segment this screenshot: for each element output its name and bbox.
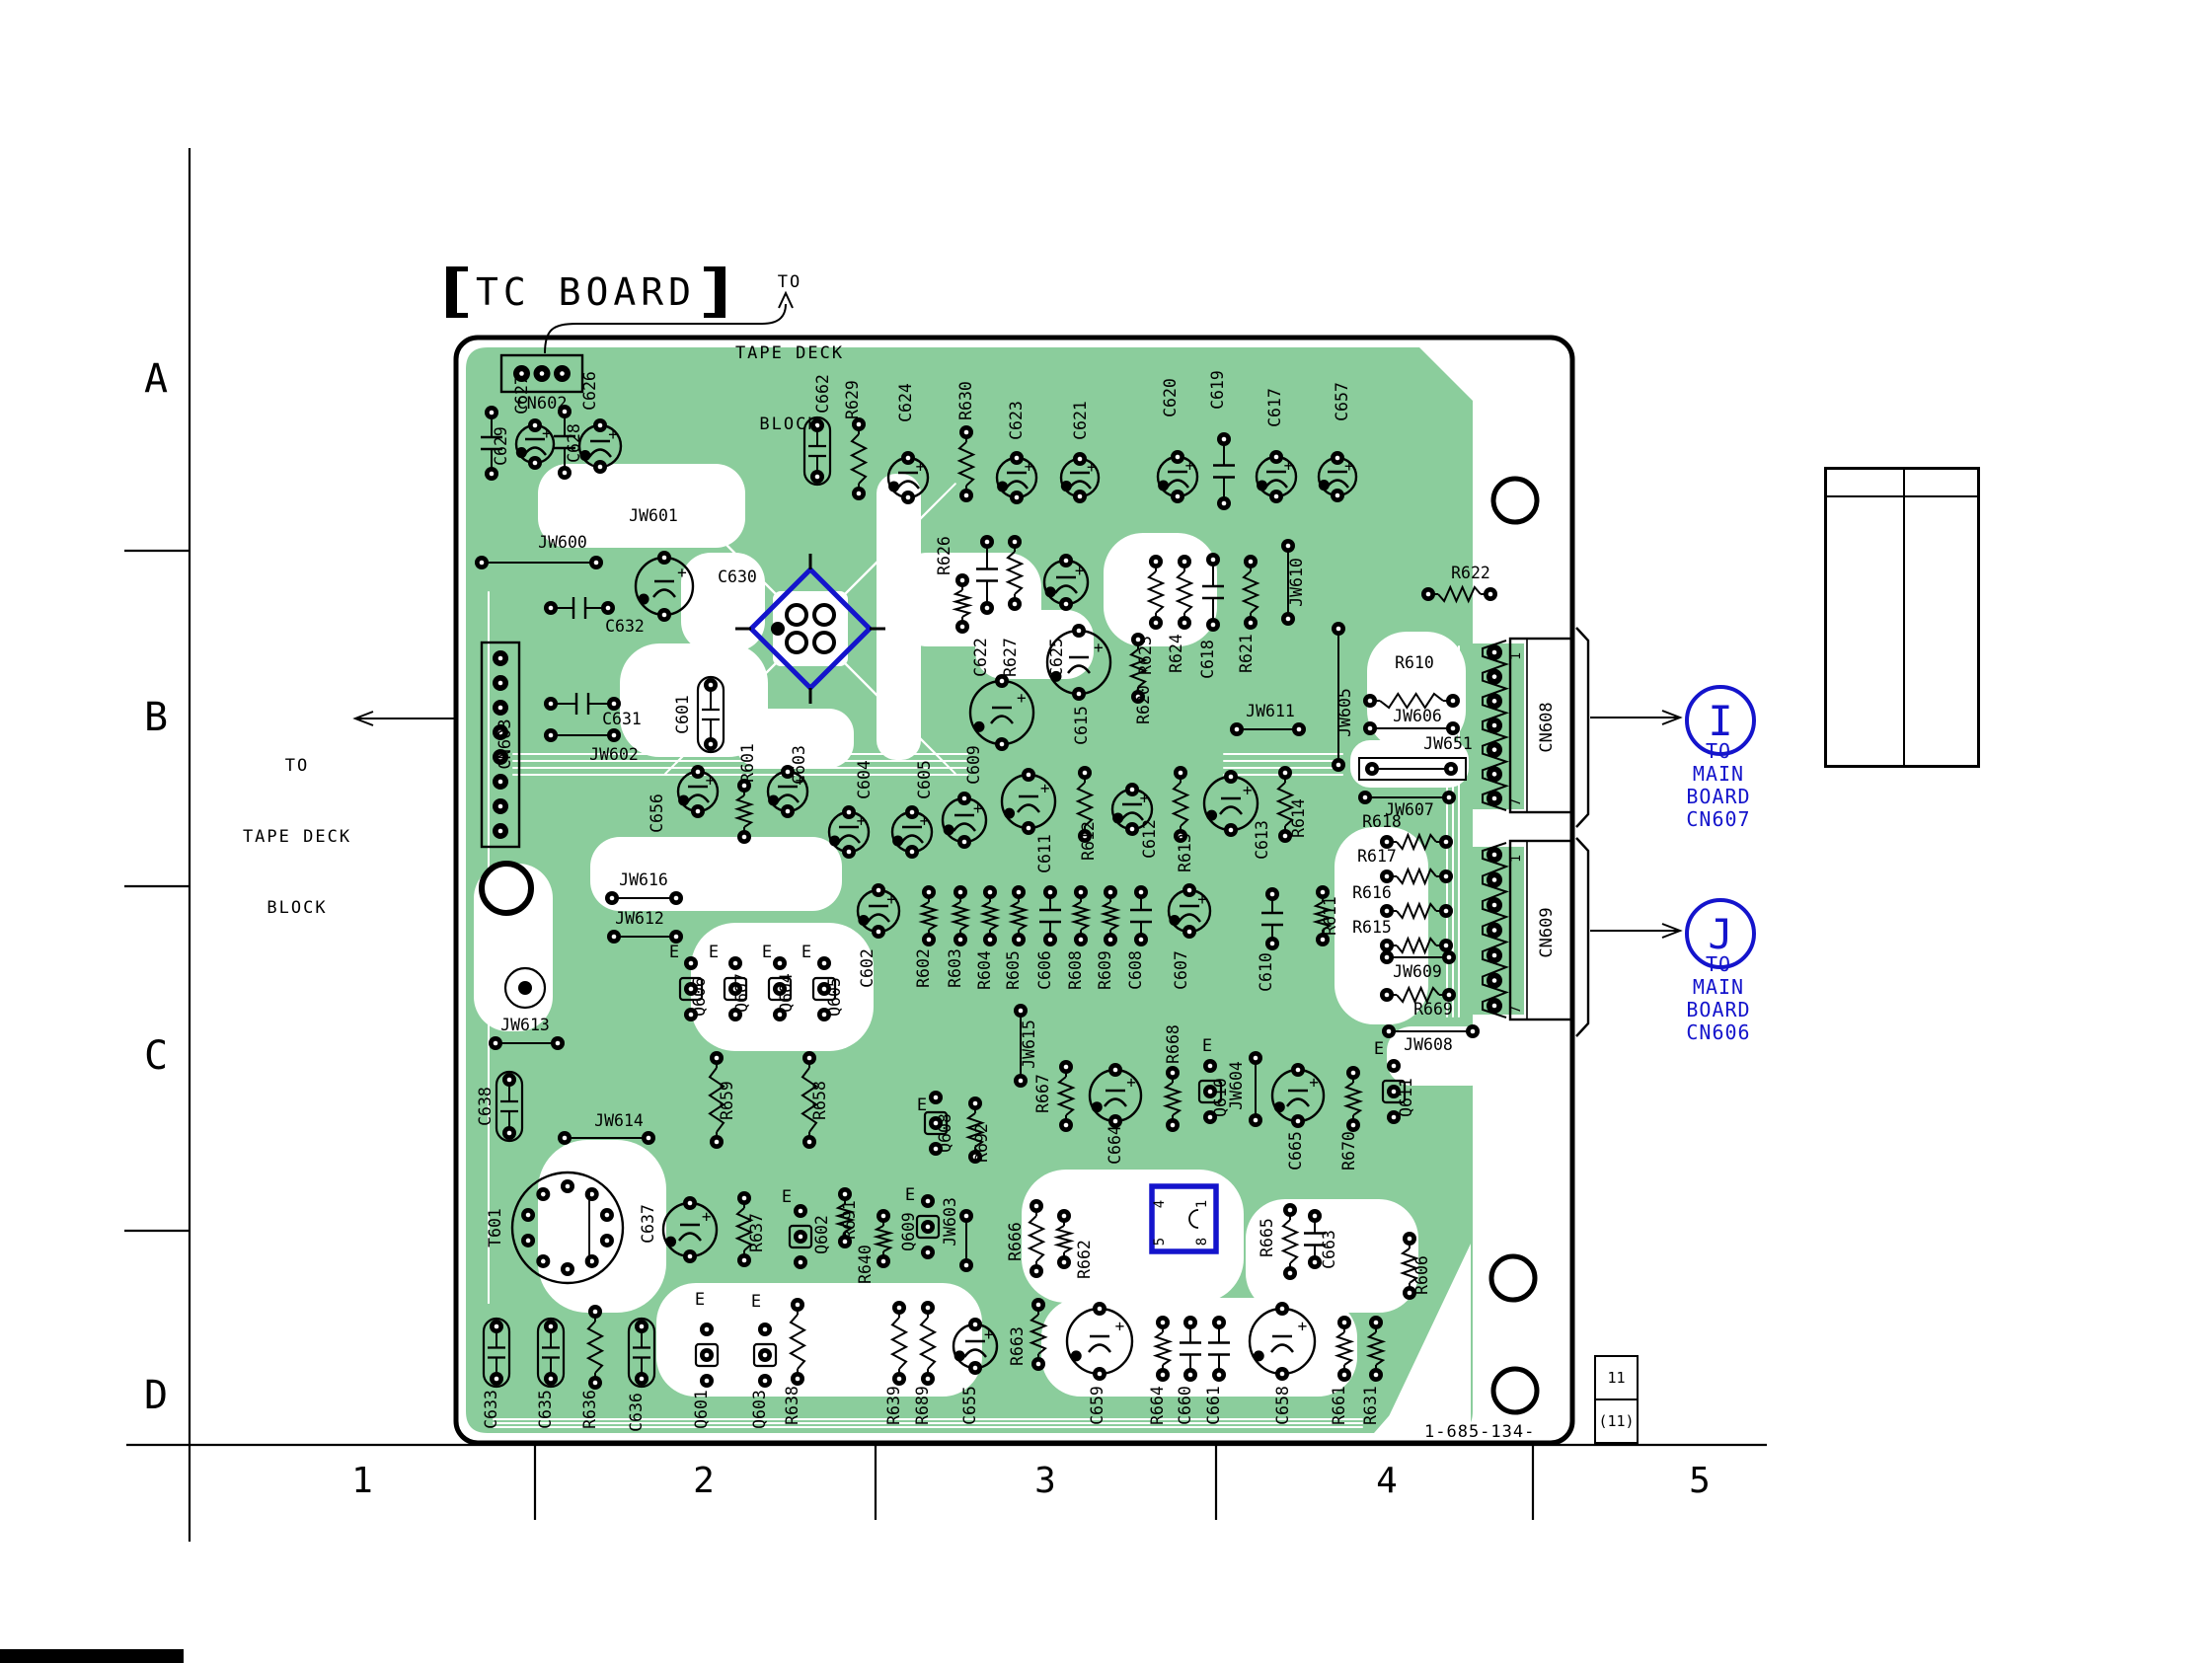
grid-row-label-B: B xyxy=(126,695,186,740)
svg-text:+: + xyxy=(542,423,552,442)
svg-text:R601: R601 xyxy=(738,743,757,783)
svg-text:R618: R618 xyxy=(1362,812,1402,831)
svg-text:T601: T601 xyxy=(486,1208,504,1247)
svg-text:Q604: Q604 xyxy=(777,973,796,1013)
svg-text:Q601: Q601 xyxy=(692,1390,711,1429)
svg-text:R631: R631 xyxy=(1361,1386,1380,1425)
svg-text:+: + xyxy=(1115,1317,1125,1335)
svg-text:R689: R689 xyxy=(913,1386,932,1425)
sheet-number-box: 11 (11) xyxy=(1594,1355,1639,1444)
title-bracket-close-icon xyxy=(704,266,725,318)
svg-text:C620: C620 xyxy=(1161,378,1180,417)
svg-text:R603: R603 xyxy=(946,948,964,988)
svg-text:+: + xyxy=(1025,457,1034,476)
svg-text:E: E xyxy=(695,1290,705,1310)
dest-line: TO xyxy=(1649,740,1788,763)
svg-text:CN608: CN608 xyxy=(1537,702,1557,752)
title-bracket-open-icon xyxy=(446,266,468,318)
svg-text:R627: R627 xyxy=(1001,638,1020,677)
svg-text:JW610: JW610 xyxy=(1287,558,1306,607)
svg-text:R692: R692 xyxy=(972,1123,991,1163)
note-line: TAPE DECK xyxy=(724,341,856,365)
svg-text:E: E xyxy=(1202,1036,1212,1056)
svg-text:R668: R668 xyxy=(1164,1024,1182,1064)
svg-text:R630: R630 xyxy=(956,381,975,420)
svg-text:+: + xyxy=(706,771,716,790)
svg-text:+: + xyxy=(1087,457,1097,476)
svg-text:R663: R663 xyxy=(1008,1326,1027,1366)
dest-text-cn607: TO MAIN BOARD CN607 xyxy=(1649,740,1788,831)
svg-text:R664: R664 xyxy=(1148,1386,1167,1425)
svg-text:R626: R626 xyxy=(935,536,953,575)
svg-text:C618: C618 xyxy=(1198,640,1217,679)
grid-col-label-5: 5 xyxy=(1670,1461,1729,1501)
svg-text:C631: C631 xyxy=(602,710,642,728)
svg-text:+: + xyxy=(1298,1317,1308,1335)
grid-row-label-D: D xyxy=(126,1373,186,1418)
page-title-text: TC BOARD xyxy=(476,270,696,314)
svg-text:JW612: JW612 xyxy=(615,909,664,928)
svg-text:Q608: Q608 xyxy=(936,1113,954,1153)
grid-col-label-1: 1 xyxy=(333,1461,392,1501)
svg-text:JW606: JW606 xyxy=(1393,707,1442,725)
dest-line: BOARD xyxy=(1649,786,1788,808)
svg-text:R615: R615 xyxy=(1352,918,1392,937)
svg-text:R606: R606 xyxy=(1412,1255,1431,1295)
svg-text:1: 1 xyxy=(1509,652,1524,660)
sheet-number-alt: (11) xyxy=(1596,1400,1637,1442)
svg-text:E: E xyxy=(709,943,719,962)
table-column-divider xyxy=(1903,470,1905,765)
svg-text:JW609: JW609 xyxy=(1393,962,1442,981)
svg-text:C659: C659 xyxy=(1088,1386,1106,1425)
svg-text:+: + xyxy=(920,811,930,830)
svg-text:+: + xyxy=(886,890,896,909)
page-edge-artifact xyxy=(0,1649,184,1663)
svg-text:+: + xyxy=(1040,779,1050,797)
svg-text:Q611: Q611 xyxy=(1397,1078,1415,1117)
svg-text:+: + xyxy=(1075,561,1085,579)
svg-text:Q603: Q603 xyxy=(750,1390,769,1429)
svg-text:C602: C602 xyxy=(858,948,877,988)
component-e: E xyxy=(1374,1039,1384,1059)
svg-text:R639: R639 xyxy=(884,1386,903,1425)
dest-line: TO xyxy=(1649,953,1788,976)
svg-text:+: + xyxy=(1344,456,1354,475)
component-JW601: JW601 xyxy=(629,506,678,525)
svg-text:+: + xyxy=(677,563,687,581)
svg-text:R609: R609 xyxy=(1096,950,1114,990)
note-line: BLOCK xyxy=(225,896,369,920)
empty-reference-table xyxy=(1824,467,1980,768)
svg-text:E: E xyxy=(917,1096,927,1115)
svg-text:R602: R602 xyxy=(914,948,933,988)
svg-text:R669: R669 xyxy=(1413,1000,1453,1019)
note-to-tape-deck-left: TO TAPE DECK BLOCK xyxy=(225,707,369,967)
svg-text:C624: C624 xyxy=(896,383,915,422)
svg-text:C655: C655 xyxy=(960,1386,979,1425)
svg-text:R638: R638 xyxy=(783,1386,801,1425)
svg-text:C609: C609 xyxy=(964,745,983,785)
svg-text:+: + xyxy=(702,1207,712,1226)
component-e: E xyxy=(669,943,679,962)
svg-text:C606: C606 xyxy=(1035,950,1054,990)
svg-text:R637: R637 xyxy=(747,1213,766,1252)
svg-text:C630: C630 xyxy=(718,567,757,586)
dest-line: MAIN xyxy=(1649,763,1788,786)
grid-col-label-4: 4 xyxy=(1357,1461,1416,1501)
svg-text:C610: C610 xyxy=(1257,952,1275,992)
svg-text:+: + xyxy=(608,425,618,444)
svg-text:JW613: JW613 xyxy=(500,1016,550,1034)
svg-text:JW615: JW615 xyxy=(1020,1020,1038,1069)
svg-text:C603: C603 xyxy=(790,745,808,785)
board-part-number: 1-685-134- xyxy=(1424,1422,1535,1442)
svg-text:4: 4 xyxy=(1152,1200,1168,1208)
component-e: E xyxy=(917,1096,927,1115)
svg-text:C625: C625 xyxy=(1047,638,1066,677)
component-e: E xyxy=(751,1292,761,1312)
component-e: E xyxy=(782,1187,792,1207)
grid-col-label-3: 3 xyxy=(1016,1461,1075,1501)
svg-text:C657: C657 xyxy=(1333,382,1351,421)
svg-text:C601: C601 xyxy=(673,695,692,734)
sheet-number: 11 xyxy=(1596,1357,1637,1400)
svg-text:CN602: CN602 xyxy=(516,394,567,414)
dest-text-cn606: TO MAIN BOARD CN606 xyxy=(1649,953,1788,1044)
svg-text:JW651: JW651 xyxy=(1423,734,1473,753)
svg-text:C632: C632 xyxy=(605,617,645,636)
svg-text:C664: C664 xyxy=(1106,1125,1124,1165)
svg-text:C633: C633 xyxy=(482,1390,500,1429)
svg-text:Q606: Q606 xyxy=(690,977,709,1017)
svg-text:E: E xyxy=(905,1185,915,1205)
svg-text:E: E xyxy=(1374,1039,1384,1059)
svg-text:C621: C621 xyxy=(1071,401,1090,440)
svg-text:+: + xyxy=(1185,456,1195,475)
svg-text:R620: R620 xyxy=(1134,685,1153,724)
dest-line: CN606 xyxy=(1649,1021,1788,1044)
svg-text:R662: R662 xyxy=(1075,1240,1094,1279)
svg-text:C636: C636 xyxy=(627,1393,646,1432)
svg-text:C661: C661 xyxy=(1204,1386,1223,1425)
svg-text:C612: C612 xyxy=(1140,819,1159,859)
svg-text:+: + xyxy=(984,1324,994,1343)
svg-text:JW600: JW600 xyxy=(538,533,587,552)
svg-text:R608: R608 xyxy=(1066,950,1085,990)
svg-text:R640: R640 xyxy=(856,1245,875,1284)
dest-letter: J xyxy=(1708,910,1732,958)
svg-text:R610: R610 xyxy=(1395,653,1434,672)
svg-text:Q605: Q605 xyxy=(825,977,844,1017)
svg-text:Q609: Q609 xyxy=(899,1212,918,1251)
svg-text:R612: R612 xyxy=(1079,821,1098,861)
component-e: E xyxy=(1202,1036,1212,1056)
svg-text:7: 7 xyxy=(1509,1006,1524,1014)
svg-text:JW605: JW605 xyxy=(1335,688,1354,737)
svg-text:C617: C617 xyxy=(1265,388,1284,427)
svg-text:C638: C638 xyxy=(476,1087,495,1126)
svg-text:C605: C605 xyxy=(915,760,934,799)
table-header-divider xyxy=(1827,495,1977,497)
svg-text:C635: C635 xyxy=(536,1390,555,1429)
svg-text:CN609: CN609 xyxy=(1537,907,1557,957)
svg-text:JW601: JW601 xyxy=(629,506,678,525)
page-title: TC BOARD xyxy=(446,266,725,318)
svg-text:R616: R616 xyxy=(1352,883,1392,902)
svg-text:R613: R613 xyxy=(1176,833,1194,872)
svg-text:C623: C623 xyxy=(1007,401,1026,440)
svg-text:R604: R604 xyxy=(975,950,994,990)
note-line: TO xyxy=(724,270,856,294)
svg-text:C660: C660 xyxy=(1176,1386,1194,1425)
dest-line: MAIN xyxy=(1649,976,1788,999)
svg-text:C608: C608 xyxy=(1126,950,1145,990)
note-line: TAPE DECK xyxy=(225,825,369,849)
svg-text:1: 1 xyxy=(1194,1200,1210,1208)
svg-text:C663: C663 xyxy=(1320,1230,1338,1269)
svg-text:Q607: Q607 xyxy=(732,973,751,1013)
svg-text:C613: C613 xyxy=(1253,820,1271,860)
grid-col-label-2: 2 xyxy=(674,1461,733,1501)
svg-text:C622: C622 xyxy=(971,638,990,677)
svg-text:R670: R670 xyxy=(1339,1131,1358,1171)
svg-text:+: + xyxy=(1309,1073,1319,1092)
svg-text:C656: C656 xyxy=(648,794,666,833)
svg-text:R605: R605 xyxy=(1004,950,1023,990)
component-e: E xyxy=(709,943,719,962)
note-line: TO xyxy=(225,754,369,778)
svg-text:C604: C604 xyxy=(855,760,874,799)
svg-text:C619: C619 xyxy=(1208,370,1227,410)
svg-text:R666: R666 xyxy=(1006,1222,1025,1261)
svg-text:C658: C658 xyxy=(1273,1386,1292,1425)
svg-text:R622: R622 xyxy=(1451,564,1490,582)
grid-row-label-C: C xyxy=(126,1033,186,1079)
component-e: E xyxy=(695,1290,705,1310)
svg-text:8: 8 xyxy=(1194,1238,1210,1246)
svg-text:R611: R611 xyxy=(1321,896,1339,936)
svg-text:R621: R621 xyxy=(1237,634,1256,673)
svg-text:C629: C629 xyxy=(492,426,510,466)
pcb-layout-page: C629C628+C627+C626C662R629+C624R630+C623… xyxy=(0,0,2212,1663)
svg-text:R665: R665 xyxy=(1258,1218,1276,1257)
svg-text:JW602: JW602 xyxy=(589,745,639,764)
dest-line: BOARD xyxy=(1649,999,1788,1021)
svg-text:+: + xyxy=(1126,1073,1136,1092)
component-e: E xyxy=(905,1185,915,1205)
svg-text:R667: R667 xyxy=(1033,1074,1052,1113)
svg-text:+: + xyxy=(1094,638,1104,656)
svg-text:+: + xyxy=(1197,890,1207,909)
svg-text:+: + xyxy=(1243,781,1253,799)
note-line: BLOCK xyxy=(724,413,856,436)
svg-text:+: + xyxy=(857,811,867,830)
svg-text:5: 5 xyxy=(1152,1238,1168,1246)
svg-text:R691: R691 xyxy=(840,1200,859,1240)
svg-text:R636: R636 xyxy=(580,1390,599,1429)
svg-text:JW614: JW614 xyxy=(594,1111,644,1130)
svg-text:+: + xyxy=(973,798,983,817)
svg-text:+: + xyxy=(916,457,926,476)
svg-text:C665: C665 xyxy=(1286,1131,1305,1171)
svg-text:CN603: CN603 xyxy=(496,718,515,769)
svg-text:C607: C607 xyxy=(1172,950,1190,990)
svg-text:JW616: JW616 xyxy=(619,870,668,889)
svg-text:Q602: Q602 xyxy=(812,1215,831,1254)
svg-text:E: E xyxy=(782,1187,792,1207)
svg-text:R617: R617 xyxy=(1357,847,1397,866)
dest-line: CN607 xyxy=(1649,808,1788,831)
svg-text:E: E xyxy=(669,943,679,962)
svg-text:E: E xyxy=(762,943,772,962)
svg-text:7: 7 xyxy=(1509,798,1524,806)
svg-text:R614: R614 xyxy=(1289,798,1308,838)
svg-text:JW611: JW611 xyxy=(1246,702,1295,720)
svg-text:R624: R624 xyxy=(1167,634,1185,673)
component-e: E xyxy=(801,943,811,962)
svg-text:1: 1 xyxy=(1509,855,1524,863)
svg-text:R658: R658 xyxy=(810,1081,829,1120)
grid-row-label-A: A xyxy=(126,356,186,402)
svg-text:E: E xyxy=(751,1292,761,1312)
svg-text:JW603: JW603 xyxy=(941,1197,959,1247)
svg-text:+: + xyxy=(1140,789,1150,807)
svg-text:JW604: JW604 xyxy=(1227,1061,1246,1110)
svg-text:C615: C615 xyxy=(1072,706,1091,745)
svg-text:C637: C637 xyxy=(639,1204,657,1244)
svg-text:C611: C611 xyxy=(1035,834,1054,873)
svg-text:R659: R659 xyxy=(718,1081,736,1120)
svg-text:+: + xyxy=(1284,456,1294,475)
svg-text:R661: R661 xyxy=(1330,1386,1348,1425)
svg-text:JW608: JW608 xyxy=(1404,1035,1453,1054)
component-e: E xyxy=(762,943,772,962)
svg-text:+: + xyxy=(1017,688,1027,707)
dest-letter: I xyxy=(1708,697,1732,745)
svg-text:E: E xyxy=(801,943,811,962)
note-to-tape-deck-top: TO TAPE DECK BLOCK xyxy=(724,223,856,484)
